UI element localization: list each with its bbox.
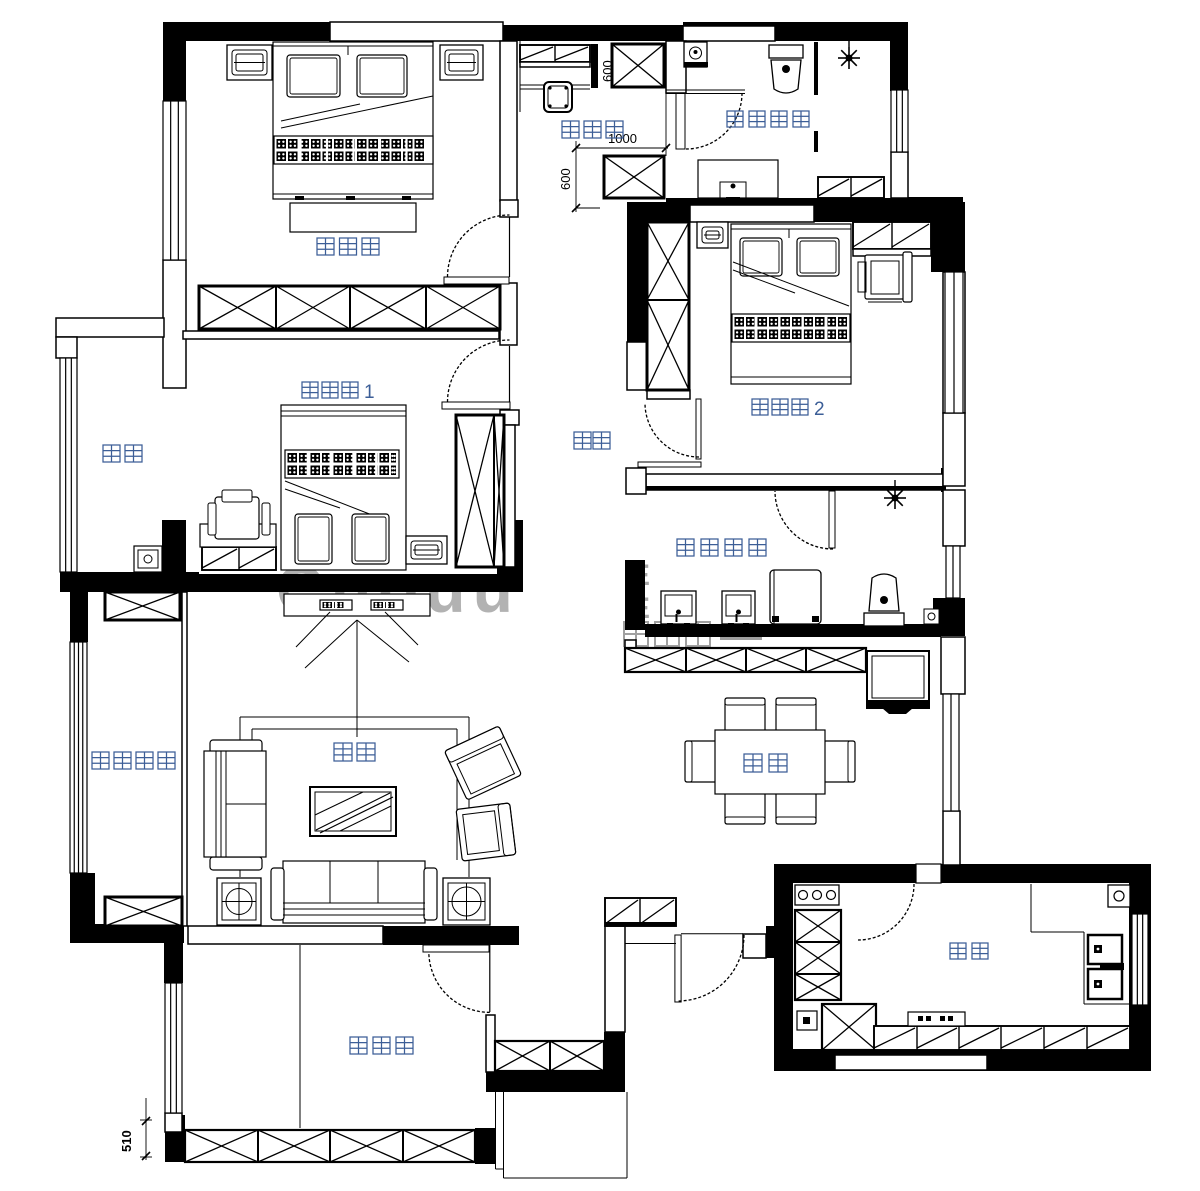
svg-text:510: 510 <box>119 1130 134 1152</box>
svg-text:600: 600 <box>558 168 573 190</box>
svg-text:600: 600 <box>600 60 615 82</box>
svg-text:1: 1 <box>364 382 375 403</box>
svg-text:2: 2 <box>814 399 825 420</box>
